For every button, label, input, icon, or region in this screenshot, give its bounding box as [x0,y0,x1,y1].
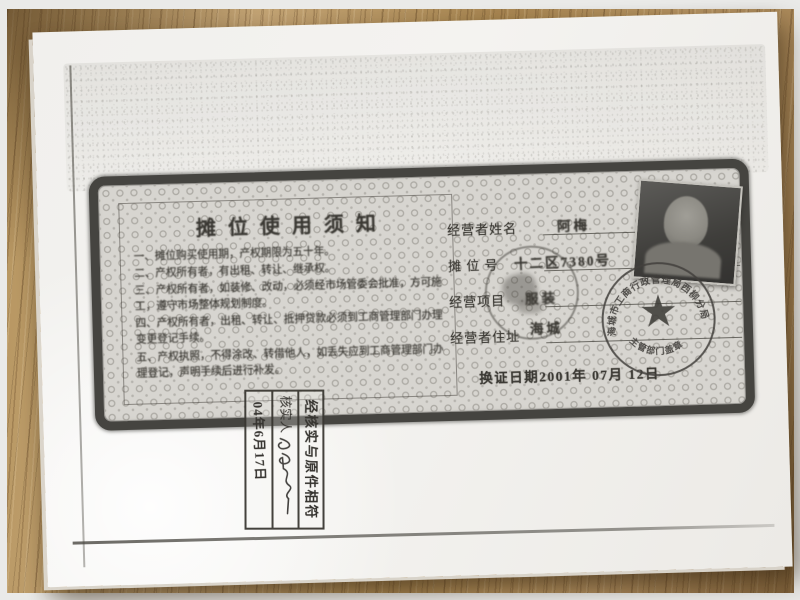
verify-statement: 经核实与原件相符 [297,392,322,528]
field-value-handwritten: 阿梅 [557,214,591,235]
notice-box: 摊位使用须知 一、摊位购买使用期，产权期限为五十年。 二、产权所有者，有出租、转… [118,194,458,405]
signature-scribble [274,435,296,517]
official-round-stamp: 海城市工商行政管理局西柳分局 主管部门盖章 ★ [600,261,717,378]
ink-smudge [517,299,543,314]
verifier-label: 核实人 [273,396,297,434]
copy-border-line-bottom [73,524,775,544]
field-label: 经营者姓名 [447,218,518,239]
notice-items: 一、摊位购买使用期，产权期限为五十年。 二、产权所有者，有出租、转让、继承权。 … [134,241,447,383]
verifier-row: 核实人 [271,392,297,528]
paper-sheet: 摊位使用须知 一、摊位购买使用期，产权期限为五十年。 二、产权所有者，有出租、转… [32,12,792,588]
notice-title: 摊位使用须知 [120,205,453,243]
star-icon: ★ [603,289,714,336]
stall-certificate: 摊位使用须知 一、摊位购买使用期，产权期限为五十年。 二、产权所有者，有出租、转… [88,159,755,431]
verify-date-handwritten: 04年6月17日 [245,391,274,528]
verification-stamp: 经核实与原件相符 核实人 04年6月17日 [244,390,324,530]
